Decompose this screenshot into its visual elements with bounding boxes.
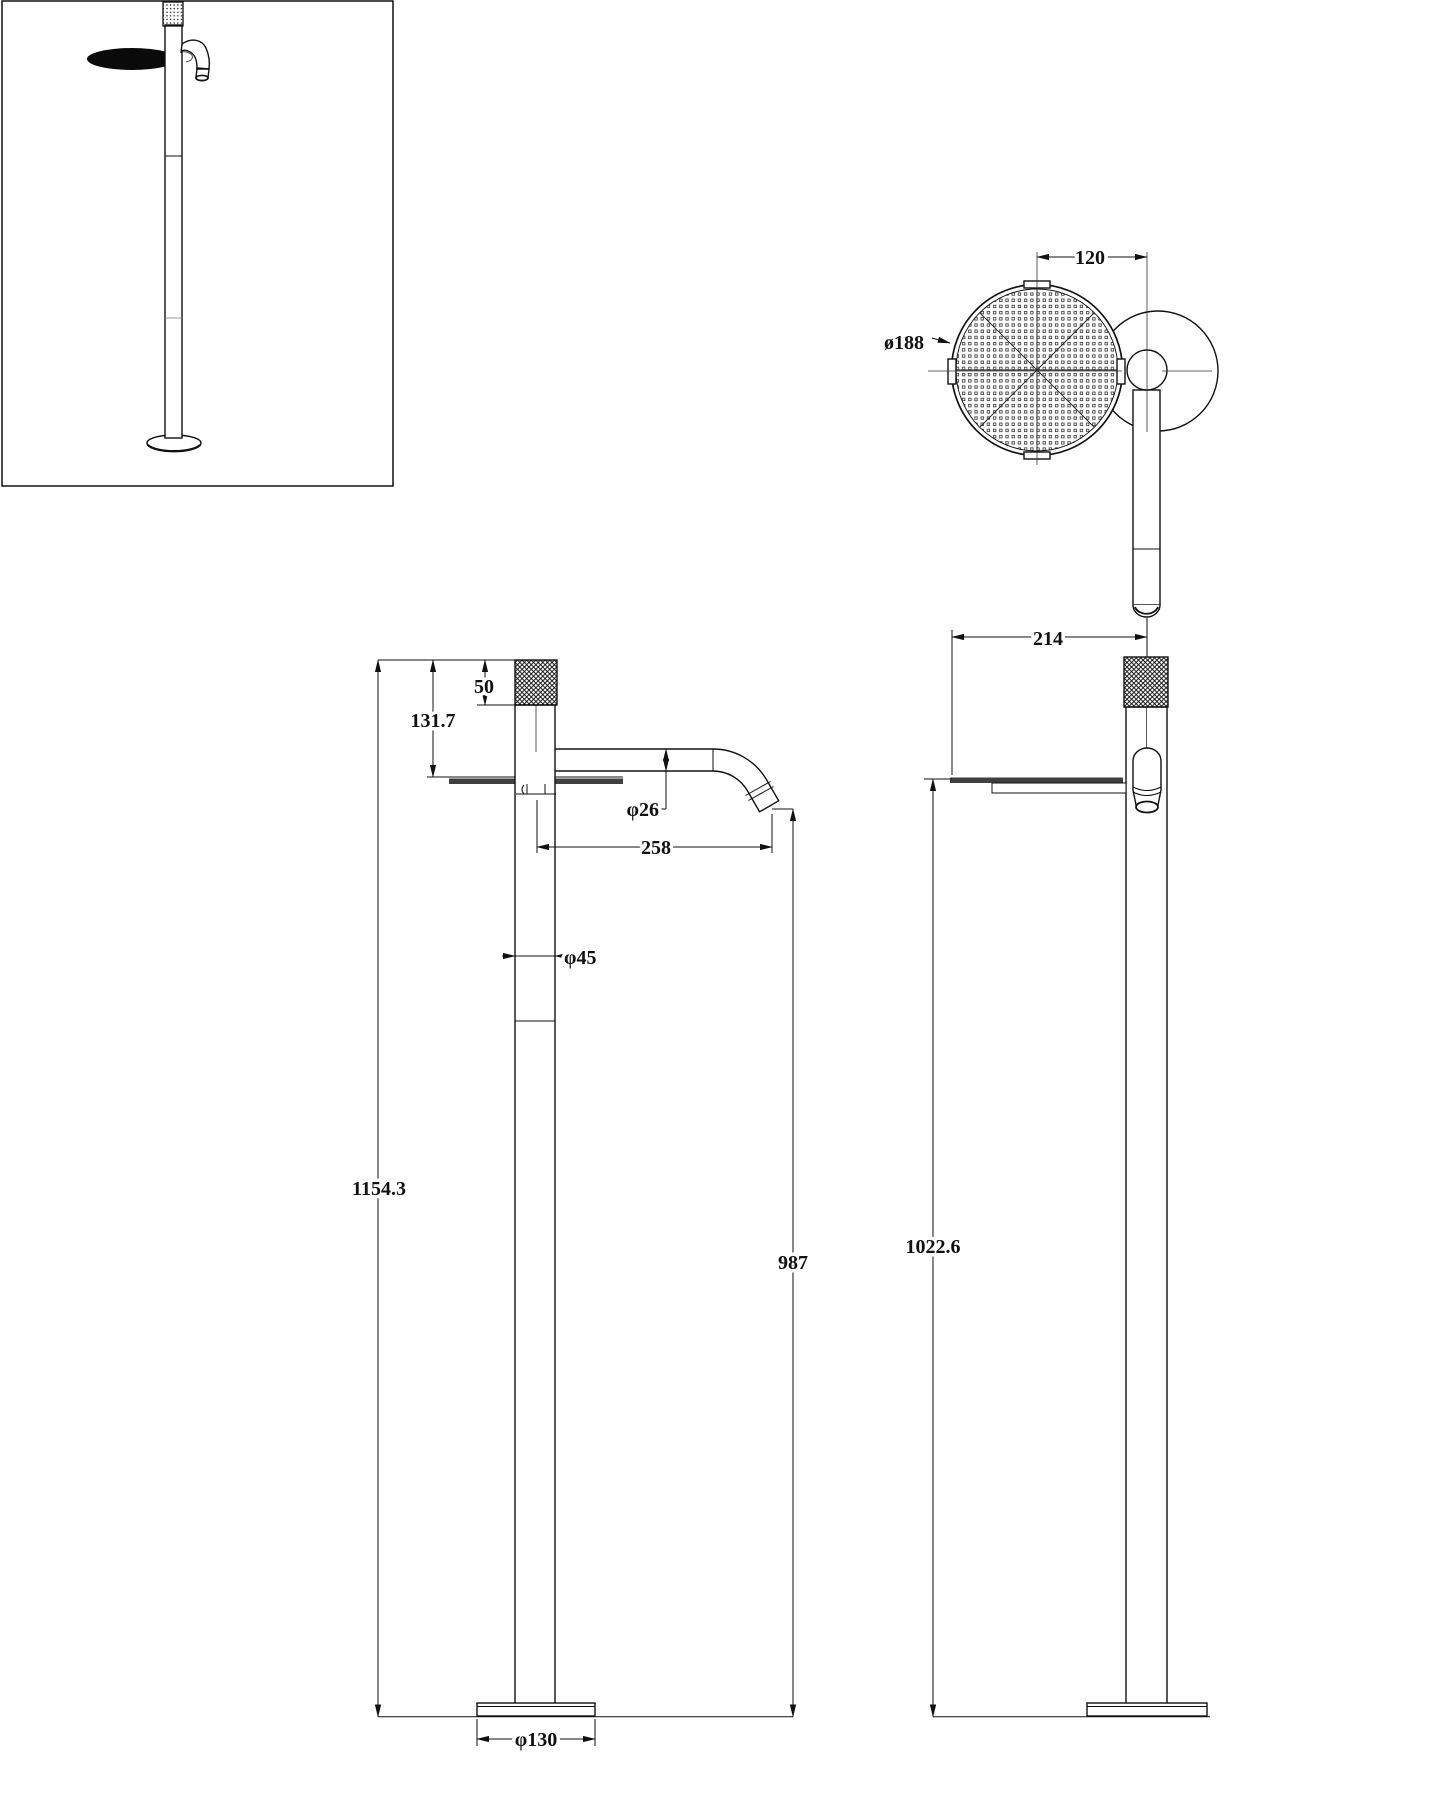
dim-label-120: 120 bbox=[1075, 247, 1105, 269]
dim-label-987: 987 bbox=[778, 1252, 808, 1274]
front-view: 50 131.7 φ26 258 φ45 1154.3 987 φ130 bbox=[352, 660, 808, 1751]
dim-label-258: 258 bbox=[641, 837, 671, 859]
side-dish-underside bbox=[992, 783, 1126, 793]
front-base-plate bbox=[477, 1703, 595, 1716]
dim-label-1154-3: 1154.3 bbox=[352, 1178, 406, 1200]
dim-label-131-7: 131.7 bbox=[411, 710, 456, 732]
iso-dish bbox=[87, 48, 177, 70]
iso-pole bbox=[165, 25, 182, 438]
iso-handle-knurl bbox=[163, 2, 183, 26]
side-handle-knurl bbox=[1124, 657, 1168, 707]
iso-view bbox=[2, 1, 393, 486]
side-view: 214 1022.6 bbox=[906, 618, 1211, 1717]
iso-spout bbox=[181, 40, 209, 69]
drawing-canvas: 120 ø188 50 131.7 bbox=[0, 0, 1445, 1800]
side-base-plate bbox=[1087, 1703, 1207, 1716]
side-spout-aerator bbox=[1136, 802, 1158, 813]
front-pole bbox=[515, 705, 555, 1704]
dim-label-50: 50 bbox=[474, 676, 494, 698]
dim-label-dia26: φ26 bbox=[627, 799, 659, 821]
dim-label-dia188: ø188 bbox=[884, 332, 924, 354]
dim-label-1022-6: 1022.6 bbox=[906, 1236, 961, 1258]
dim-label-dia130: φ130 bbox=[515, 1729, 557, 1751]
front-handle-knurl bbox=[515, 660, 557, 705]
top-dish-tab-right bbox=[1117, 359, 1125, 384]
leader-dia188 bbox=[932, 338, 950, 343]
top-view: 120 ø188 bbox=[884, 247, 1218, 617]
side-dish-plate bbox=[950, 778, 1123, 784]
side-pole bbox=[1126, 707, 1167, 1704]
dim-label-214: 214 bbox=[1033, 628, 1063, 650]
dim-label-dia45: φ45 bbox=[564, 947, 596, 969]
top-spout-body bbox=[1133, 390, 1160, 605]
side-spout-endon bbox=[1133, 748, 1161, 805]
top-dish-tab-left bbox=[948, 359, 956, 384]
faucet-technical-drawing: 120 ø188 50 131.7 bbox=[0, 0, 1445, 1800]
